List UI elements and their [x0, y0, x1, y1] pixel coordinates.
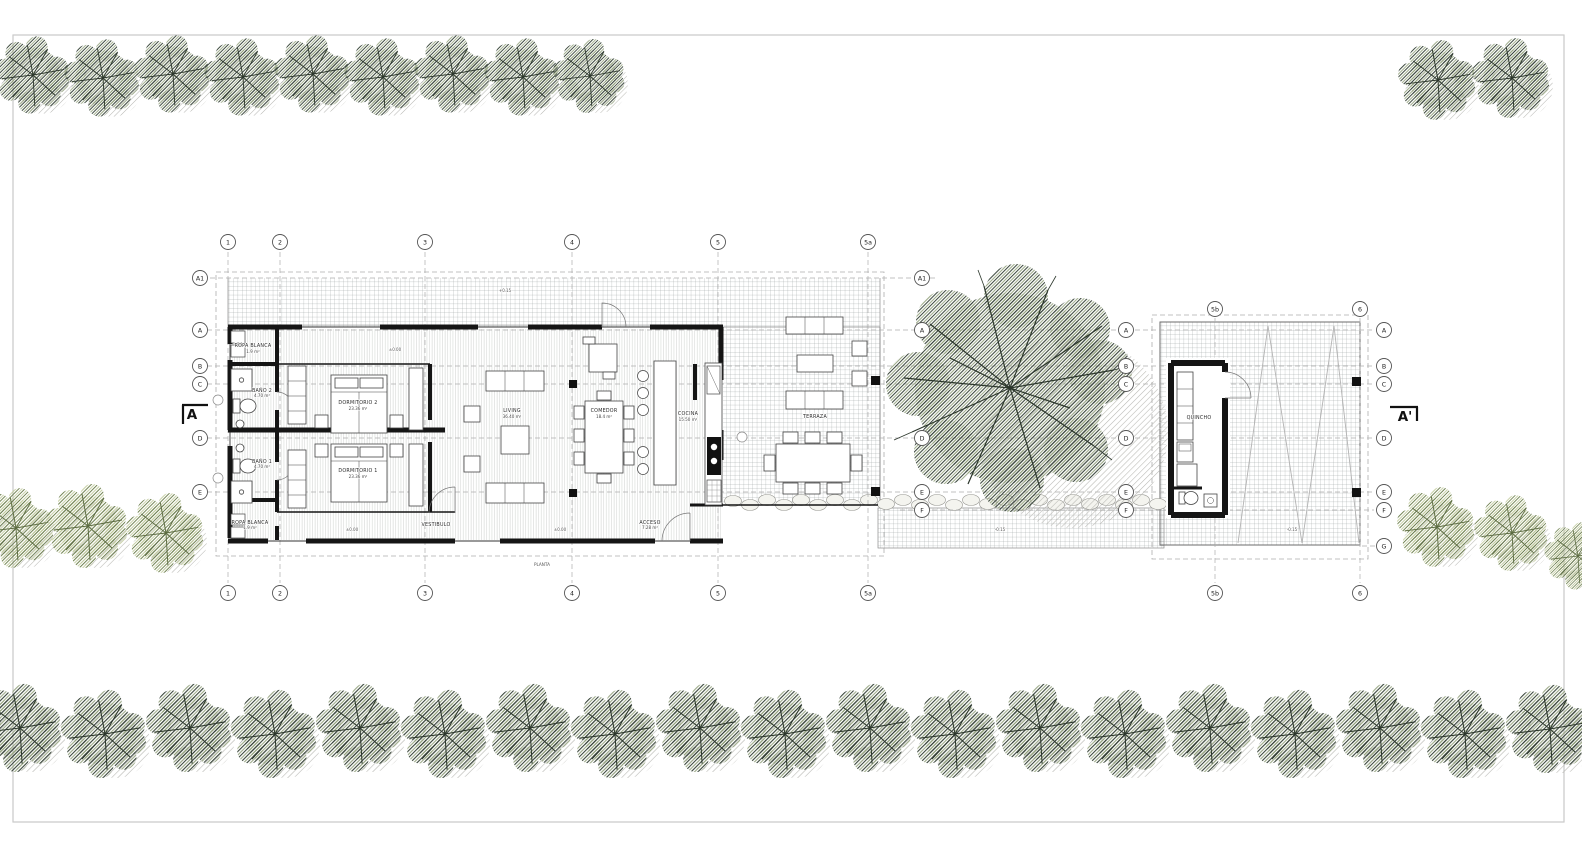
outdoor-dining-table [776, 444, 850, 482]
svg-text:5a: 5a [864, 590, 872, 597]
svg-text:7.28 m²: 7.28 m² [642, 525, 658, 530]
svg-text:A: A [1382, 327, 1387, 334]
svg-text:D: D [920, 435, 925, 442]
svg-text:B: B [1124, 363, 1128, 370]
sofa [486, 371, 544, 391]
toilet-bowl [240, 399, 256, 413]
wardrobe [288, 366, 306, 424]
sink-unit [1177, 442, 1193, 462]
svg-text:4.70 m²: 4.70 m² [254, 393, 270, 398]
grid-bubble-col-4: 4 [570, 239, 574, 246]
cabinet [1177, 464, 1197, 486]
toilet-tank [233, 459, 240, 473]
svg-text:B: B [1382, 363, 1386, 370]
svg-text:5: 5 [716, 590, 720, 597]
level-mark: ±0.00 [554, 527, 567, 532]
svg-text:15.50 m²: 15.50 m² [679, 417, 698, 422]
dresser [409, 444, 423, 506]
stove [707, 437, 721, 475]
grid-bubble-row-a1: A1 [196, 275, 204, 282]
svg-text:D: D [1124, 435, 1129, 442]
coffee-table [797, 355, 833, 372]
side-table [852, 371, 867, 386]
svg-text:A: A [920, 327, 925, 334]
grid-bubble-col-1: 1 [226, 239, 230, 246]
room-label-quincho: QUINCHO [1187, 415, 1212, 421]
outdoor-sofa [786, 317, 843, 334]
north-deck [228, 278, 880, 327]
svg-text:A1: A1 [918, 275, 926, 282]
drawing-note: PLANTA [534, 562, 550, 567]
svg-text:6: 6 [1358, 590, 1362, 597]
grid-bubble-col-2: 2 [278, 239, 282, 246]
sink [236, 444, 244, 452]
svg-text:4: 4 [570, 590, 574, 597]
tree-row-top [0, 35, 1553, 120]
level-mark: +0.15 [499, 288, 512, 293]
room-label-terraza: TERRAZA [802, 414, 828, 420]
grid-bubble-row-d: D [198, 435, 203, 442]
svg-text:23.36 m²: 23.36 m² [349, 406, 368, 411]
section-marker-a-prime: A' [1390, 407, 1418, 425]
room-label-vestibulo: VESTIBULO [421, 522, 450, 528]
grid-bubble-col-6: 6 [1358, 306, 1362, 313]
svg-text:G: G [1382, 543, 1387, 550]
grid-bubble-col-5b: 5b [1211, 306, 1219, 313]
svg-text:4.70 m²: 4.70 m² [254, 464, 270, 469]
level-mark: ±0.00 [389, 347, 402, 352]
trees-right [1397, 487, 1582, 589]
grid-bubble-col-5a: 5a [864, 239, 872, 246]
grid-bubble-row-e: E [198, 489, 202, 496]
svg-text:F: F [1382, 507, 1386, 514]
grid-bubble-row-b: B [198, 363, 202, 370]
coffee-table [501, 426, 529, 454]
nightstand [390, 415, 403, 428]
kitchen-island [654, 361, 676, 485]
svg-text:E: E [920, 489, 924, 496]
svg-text:3: 3 [423, 590, 427, 597]
shower [231, 481, 252, 503]
level-mark: -0.15 [1287, 527, 1298, 532]
svg-text:C: C [1124, 381, 1129, 388]
svg-text:2: 2 [278, 590, 282, 597]
svg-text:A: A [1124, 327, 1129, 334]
svg-text:23.36 m²: 23.36 m² [349, 474, 368, 479]
section-label-a: A [187, 407, 198, 423]
level-mark: -0.15 [995, 527, 1006, 532]
svg-text:36.40 m²: 36.40 m² [503, 414, 522, 419]
floor-plan-svg: ROPA BLANCA 1.9 m² BAÑO 2 4.70 m² BAÑO 1… [0, 0, 1582, 856]
sofa [486, 483, 544, 503]
toilet-tank [233, 399, 240, 413]
nightstand [315, 415, 328, 428]
dresser [409, 368, 423, 430]
grid-bubble-col-3: 3 [423, 239, 427, 246]
grid-bubble-row-a: A [198, 327, 203, 334]
trees-left [0, 484, 207, 573]
nightstand [390, 444, 403, 457]
basin [1204, 494, 1217, 507]
sink [236, 420, 244, 428]
svg-text:C: C [1382, 381, 1387, 388]
shower [231, 369, 252, 391]
wardrobe [288, 450, 306, 508]
grid-bubble-col-5: 5 [716, 239, 720, 246]
svg-text:D: D [1382, 435, 1387, 442]
level-mark: ±0.00 [346, 527, 359, 532]
section-marker-a: A [182, 405, 208, 424]
kitchen-sink [707, 480, 721, 502]
grid-bubble-row-c: C [198, 381, 203, 388]
side-table [589, 344, 617, 372]
plan-sheet: ROPA BLANCA 1.9 m² BAÑO 2 4.70 m² BAÑO 1… [0, 0, 1582, 856]
svg-text:E: E [1124, 489, 1128, 496]
svg-text:5b: 5b [1211, 590, 1219, 597]
armchair [464, 456, 480, 472]
outdoor-sofa [786, 391, 843, 409]
tree-row-bottom [0, 684, 1582, 778]
side-table [852, 341, 867, 356]
armchair [464, 406, 480, 422]
nightstand [315, 444, 328, 457]
toilet-bowl [1184, 492, 1198, 505]
section-label-a-prime: A' [1398, 409, 1413, 425]
svg-text:F: F [1124, 507, 1128, 514]
svg-text:1.9 m²: 1.9 m² [246, 349, 260, 354]
pavilion-room-floor [1166, 358, 1230, 518]
svg-text:18.4 m²: 18.4 m² [596, 414, 612, 419]
svg-text:E: E [1382, 489, 1386, 496]
svg-text:F: F [920, 507, 924, 514]
svg-text:1.9 m²: 1.9 m² [243, 525, 257, 530]
svg-text:1: 1 [226, 590, 230, 597]
